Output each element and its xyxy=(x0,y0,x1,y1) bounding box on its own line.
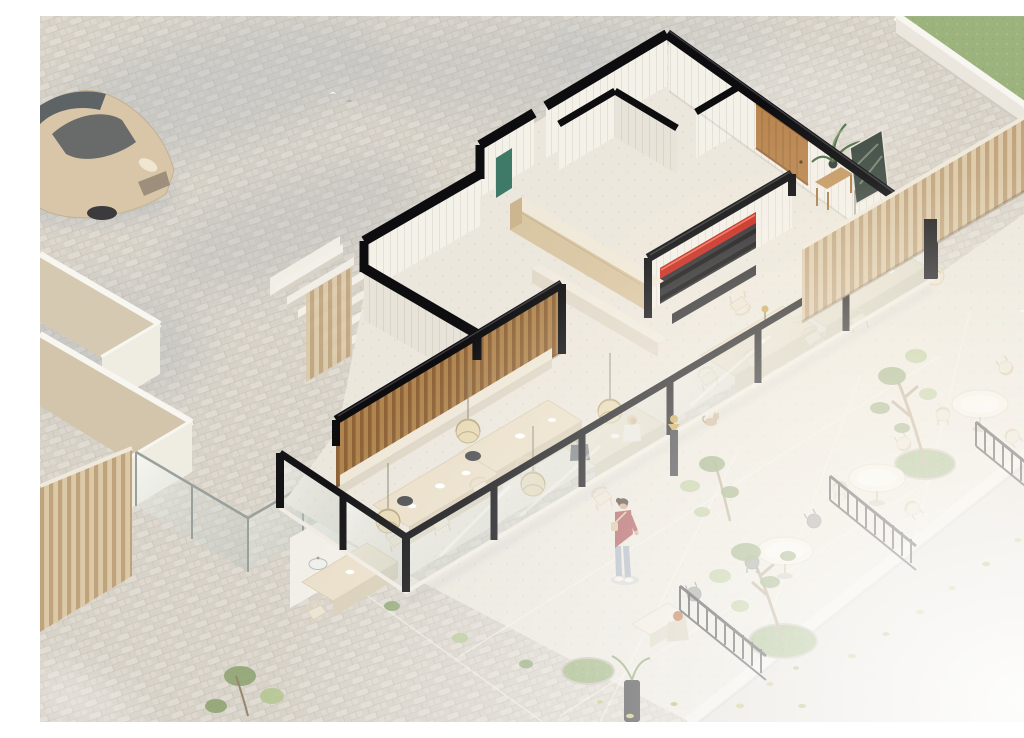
atmosphere-overlays xyxy=(40,16,1024,722)
render-canvas xyxy=(40,16,1024,722)
isometric-cafe-render: Isometric cutaway rendering of a corner … xyxy=(40,16,1024,722)
